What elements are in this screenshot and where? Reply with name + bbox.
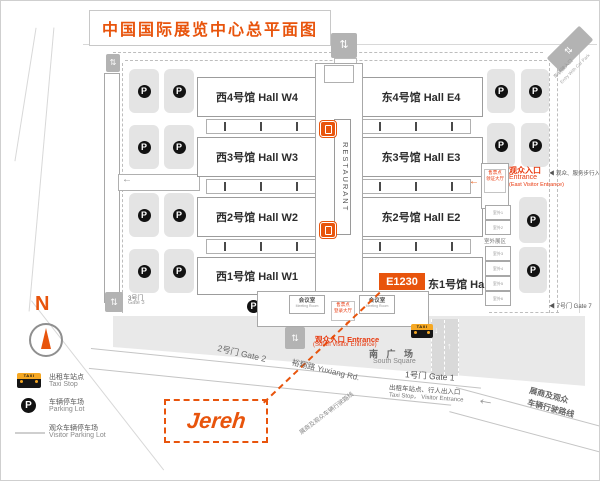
door-tick [451, 242, 453, 251]
gate3-sign: ⇅ [105, 292, 123, 312]
parking-icon: P [173, 141, 186, 154]
meeting-room: 会议室 Meeting Room [289, 295, 325, 314]
hall-label: 西3号馆 Hall W3 [216, 149, 298, 165]
right-road-dash [557, 63, 558, 313]
parking-icon: P [173, 265, 186, 278]
left-road-line-1 [14, 28, 36, 161]
car-entrance-sign: ⇅ [331, 33, 357, 58]
door-tick [224, 182, 226, 191]
connector-corridor [361, 179, 471, 194]
gate7-label: ◀ 7号门 Gate 7 [549, 301, 592, 310]
parking-lot: P [521, 69, 549, 113]
hall-w1: 西1号馆 Hall W1 [197, 257, 317, 295]
restaurant-box: RESTAURANT [334, 119, 351, 235]
door-tick [451, 182, 453, 191]
taxi-car-body [411, 330, 433, 338]
legend-visitor-en: Visitor Parking Lot [49, 432, 106, 439]
hall-e3: 东3号馆 Hall E3 [359, 137, 483, 177]
hall-label: 西4号馆 Hall W4 [216, 89, 298, 105]
parking-icon: P [527, 264, 540, 277]
compass-north-label: N [35, 293, 49, 316]
parking-lot: P [129, 193, 159, 237]
parking-icon: P [173, 85, 186, 98]
top-road-dash [113, 52, 543, 53]
lane-up-arrow-icon: ↑ [447, 341, 452, 351]
door-tick [260, 182, 262, 191]
south-square-label-en: South Square [373, 358, 416, 365]
parking-lot: P [521, 123, 549, 167]
taxi-stop-icon: TAXI [411, 324, 433, 338]
meeting-room-zh: 会议室 [360, 296, 394, 304]
hall-w4: 西4号馆 Hall W4 [197, 77, 317, 117]
parking-icon: P [138, 141, 151, 154]
outdoor-box: 室外2 [485, 220, 511, 235]
outdoor-area-label: 室外展区 [484, 237, 506, 245]
parking-lot: P [487, 69, 515, 113]
hall-e4: 东4号馆 Hall E4 [359, 77, 483, 117]
hall-label: 西1号馆 Hall W1 [216, 268, 298, 284]
legend-parking-en: Parking Lot [49, 406, 84, 413]
door-tick [379, 122, 381, 131]
door-tick [415, 182, 417, 191]
hall-label: 西2号馆 Hall W2 [216, 209, 298, 225]
parking-lot: P [129, 69, 159, 113]
outdoor-box: 室外1 [485, 205, 511, 220]
parking-lot: P [164, 69, 194, 113]
door-tick [224, 122, 226, 131]
route-label-left: 展商及观众车辆行驶路线 [297, 389, 355, 436]
northwest-gate-sign: ⇅ [106, 54, 120, 72]
door-tick [379, 182, 381, 191]
corridor-north-lobby [324, 65, 354, 83]
connector-corridor [361, 119, 471, 134]
taxi-car-body [17, 379, 41, 388]
door-tick [224, 242, 226, 251]
east-entrance-arrow-icon: ← [469, 176, 479, 187]
meeting-room-zh: 会议室 [290, 296, 324, 304]
hall-w2: 西2号馆 Hall W2 [197, 197, 317, 237]
compass-icon [29, 323, 63, 357]
parking-icon: P [495, 85, 508, 98]
hall-e2: 东2号馆 Hall E2 [359, 197, 483, 237]
walk-entrance-label: ◀ 观众、服务步行入口 [549, 169, 600, 177]
page-title: 中国国际展览中心总平面图 [89, 10, 331, 46]
meeting-room-en: Meeting Room [290, 304, 324, 308]
jereh-logo-box: Jereh [164, 399, 268, 443]
left-road-line-2 [29, 27, 55, 311]
restaurant-icon [320, 121, 336, 137]
compass-needle [41, 328, 51, 349]
connector-corridor [361, 239, 471, 254]
door-tick [260, 242, 262, 251]
lane-down-arrow-icon: ↓ [434, 325, 439, 335]
legend-taxi-en: Taxi Stop [49, 381, 78, 388]
parking-icon: P [529, 139, 542, 152]
door-tick [296, 242, 298, 251]
route-arrow-icon: ← [475, 388, 496, 412]
connector-corridor [206, 239, 316, 254]
parking-lot: P [129, 125, 159, 169]
east-entrance-label-en2: (East Visitor Entrance) [509, 182, 564, 188]
parking-lot: P [164, 249, 194, 293]
booth-badge: E1230 [379, 273, 425, 290]
connector-corridor [206, 179, 316, 194]
outdoor-box: 室外3 [485, 246, 511, 261]
legend-taxi-icon: TAXI [17, 373, 41, 388]
parking-lot: P [164, 125, 194, 169]
door-tick [260, 122, 262, 131]
outdoor-box: 室外5 [485, 276, 511, 291]
parking-icon: P [138, 85, 151, 98]
hall-label: 东2号馆 Hall E2 [382, 209, 461, 225]
restaurant-icon [320, 222, 336, 238]
connector-corridor [206, 119, 316, 134]
door-tick [296, 122, 298, 131]
ticket-office-line2: 领证大厅 [485, 176, 505, 182]
legend-visitor-parking-swatch [15, 432, 45, 434]
hall-w3: 西3号馆 Hall W3 [197, 137, 317, 177]
west-arrow-icon: ← [122, 174, 132, 185]
parking-icon: P [138, 265, 151, 278]
hall-label: 东3号馆 Hall E3 [382, 149, 461, 165]
door-tick [296, 182, 298, 191]
parking-lot: P [519, 197, 547, 243]
jereh-logo: Jereh [185, 408, 246, 434]
parking-lot: P [129, 249, 159, 293]
outdoor-box: 室外6 [485, 291, 511, 306]
east-entrance-label-en: Entrance [509, 174, 537, 181]
site-boundary-right [549, 63, 550, 313]
parking-icon: P [495, 139, 508, 152]
parking-icon: P [527, 214, 540, 227]
gate2-sign: ⇅ [285, 327, 305, 349]
door-tick [379, 242, 381, 251]
parking-icon: P [529, 85, 542, 98]
gate1-road-centerline [444, 320, 445, 375]
right-road-line [579, 41, 580, 313]
hall-label: 东4号馆 Hall E4 [382, 89, 461, 105]
parking-icon: P [173, 209, 186, 222]
parking-icon: P [138, 209, 151, 222]
south-entrance-label-2: (South Visitor Entrance) [313, 342, 377, 348]
parking-lot: P [164, 193, 194, 237]
southeast-road [449, 387, 600, 456]
exhibition-center-map: 中国国际展览中心总平面图 ⇅ 车辆驶入口 Entry With Car Park… [0, 0, 600, 481]
door-tick [415, 122, 417, 131]
legend-parking-icon: P [21, 398, 36, 413]
parking-lot: P [519, 247, 547, 293]
ticket-office-line2: 登录大厅 [332, 308, 354, 314]
door-tick [451, 122, 453, 131]
site-boundary-bottom-right [489, 312, 559, 313]
east-ticket-office: 售票点 领证大厅 [484, 169, 506, 193]
gate3-label-en: Gate 3 [128, 300, 145, 306]
parking-lot: P [487, 123, 515, 167]
outdoor-box: 室外4 [485, 261, 511, 276]
door-tick [415, 242, 417, 251]
